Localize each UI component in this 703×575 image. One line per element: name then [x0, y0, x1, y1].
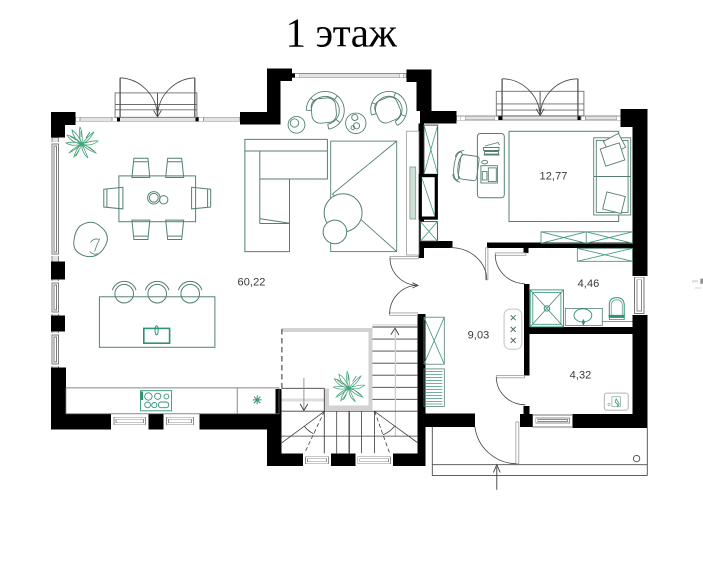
svg-text:4,32: 4,32 [570, 370, 592, 382]
svg-text:1 этаж: 1 этаж [286, 10, 398, 56]
svg-text:60,22: 60,22 [237, 277, 265, 289]
svg-text:12,77: 12,77 [539, 171, 567, 183]
svg-text:4,46: 4,46 [578, 278, 600, 290]
svg-text:9,03: 9,03 [468, 330, 490, 342]
